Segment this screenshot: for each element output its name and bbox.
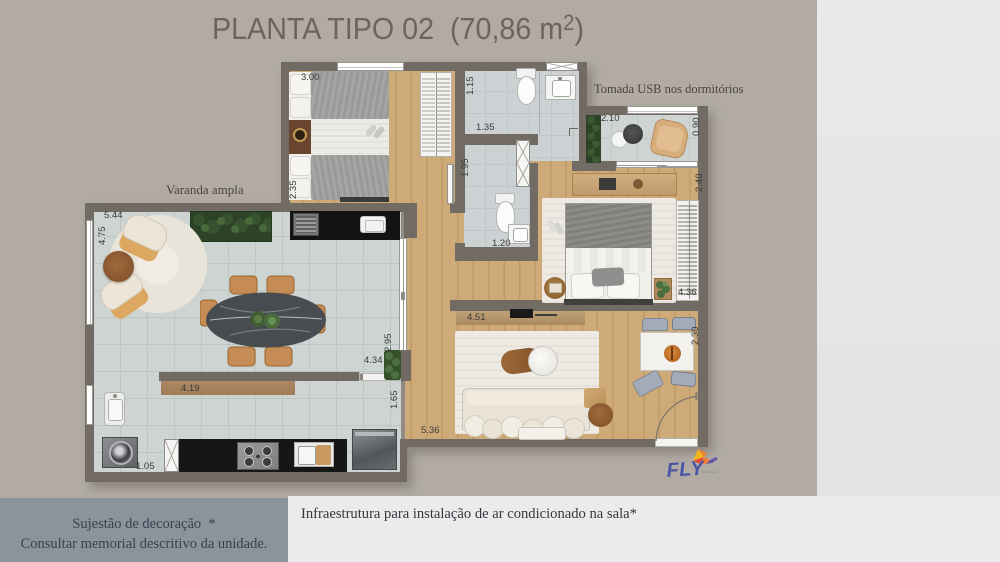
svg-text:FLY: FLY bbox=[666, 457, 706, 480]
